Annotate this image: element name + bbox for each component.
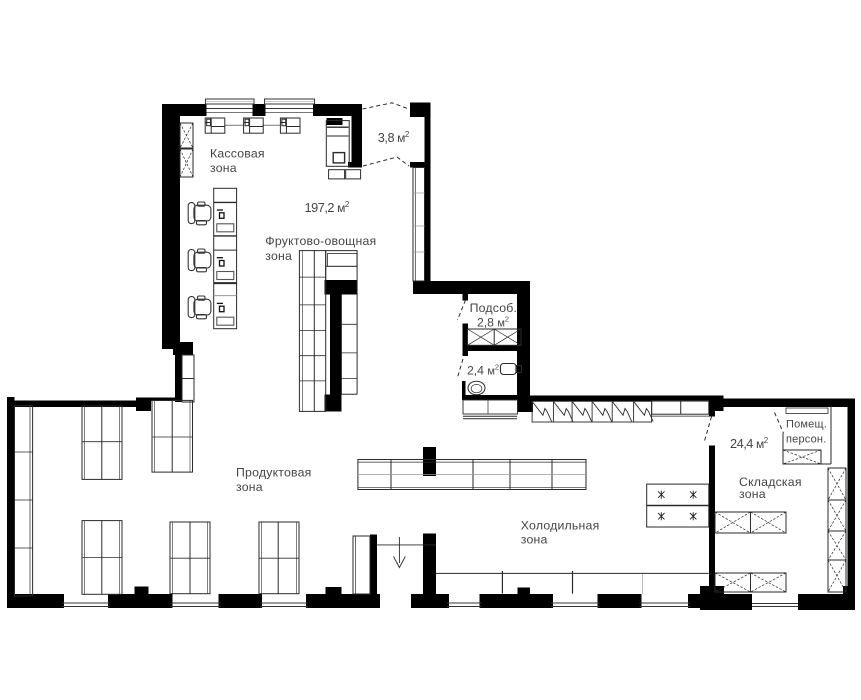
svg-text:2,8 м2: 2,8 м2 — [477, 315, 509, 330]
svg-text:Подсоб.: Подсоб. — [470, 301, 518, 315]
svg-text:персон.: персон. — [786, 434, 826, 446]
svg-text:2,4 м2: 2,4 м2 — [467, 363, 499, 378]
svg-text:зона: зона — [265, 249, 292, 263]
svg-text:зона: зона — [739, 487, 766, 501]
svg-text:Помещ.: Помещ. — [786, 419, 827, 431]
svg-text:Фруктово-овощная: Фруктово-овощная — [265, 234, 376, 248]
svg-text:зона: зона — [210, 161, 237, 175]
svg-text:Холодильная: Холодильная — [521, 519, 600, 533]
svg-text:24,4 м2: 24,4 м2 — [730, 436, 769, 451]
svg-text:Кассовая: Кассовая — [210, 147, 265, 161]
svg-text:Продуктовая: Продуктовая — [236, 466, 312, 480]
svg-text:зона: зона — [236, 480, 263, 494]
svg-text:зона: зона — [521, 532, 548, 546]
svg-text:197,2 м2: 197,2 м2 — [305, 200, 350, 215]
